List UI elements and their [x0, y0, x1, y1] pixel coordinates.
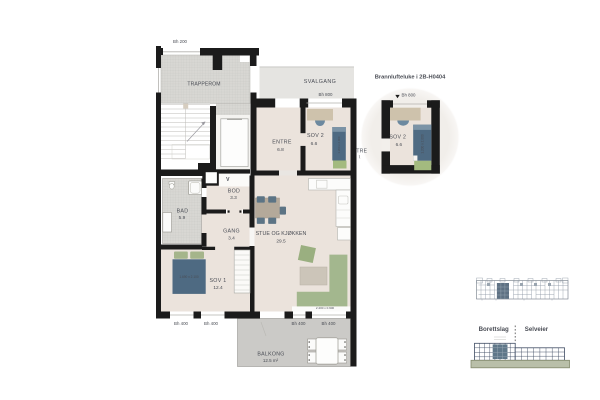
svg-text:3.4: 3.4 [228, 236, 235, 242]
svg-text:TRAPPEROM: TRAPPEROM [187, 82, 220, 88]
svg-text:\: \ [359, 155, 361, 160]
svg-text:6.6: 6.6 [311, 141, 318, 147]
svg-text:BAD: BAD [177, 209, 189, 215]
svg-text:3.3: 3.3 [230, 195, 237, 201]
svg-text:6.6: 6.6 [396, 142, 403, 147]
svg-text:12.4: 12.4 [213, 285, 223, 291]
svg-text:SOV 2: SOV 2 [307, 133, 324, 139]
svg-text:Bh 800: Bh 800 [319, 92, 333, 97]
svg-text:TRE: TRE [356, 148, 367, 154]
svg-text:Bh 400: Bh 400 [204, 321, 218, 326]
svg-text:12.5 m²: 12.5 m² [263, 358, 279, 363]
svg-text:5.9: 5.9 [179, 215, 186, 221]
svg-text:2.400 x 0.900: 2.400 x 0.900 [316, 306, 335, 310]
svg-text:Bh 400: Bh 400 [174, 321, 188, 326]
svg-text:Borettslag: Borettslag [479, 326, 509, 333]
svg-text:1.690 x 2.100: 1.690 x 2.100 [179, 275, 199, 279]
svg-text:Bh 400: Bh 400 [292, 321, 306, 326]
svg-text:SOV 2: SOV 2 [389, 134, 406, 140]
svg-text:Brannlufteluke i 2B-H0404: Brannlufteluke i 2B-H0404 [375, 75, 446, 81]
svg-text:6.8: 6.8 [277, 147, 284, 153]
svg-text:SOV 1: SOV 1 [209, 278, 226, 284]
svg-text:Selveier: Selveier [525, 326, 549, 333]
svg-text:Bh 800: Bh 800 [402, 93, 416, 98]
svg-text:BOD: BOD [228, 189, 240, 195]
svg-text:ENTRE: ENTRE [272, 140, 292, 146]
svg-text:GANG: GANG [223, 229, 240, 235]
svg-text:SVALGANG: SVALGANG [304, 79, 336, 85]
svg-text:STUE OG KJØKKEN: STUE OG KJØKKEN [256, 231, 307, 237]
svg-text:Bh 400: Bh 400 [322, 321, 336, 326]
svg-text:BALKONG: BALKONG [257, 352, 284, 358]
svg-text:Bh 200: Bh 200 [173, 39, 187, 44]
svg-text:1.200 x 2.000: 1.200 x 2.000 [337, 136, 341, 153]
svg-text:1.200 x 2.000: 1.200 x 2.000 [421, 134, 425, 154]
svg-text:29.5: 29.5 [276, 238, 286, 244]
